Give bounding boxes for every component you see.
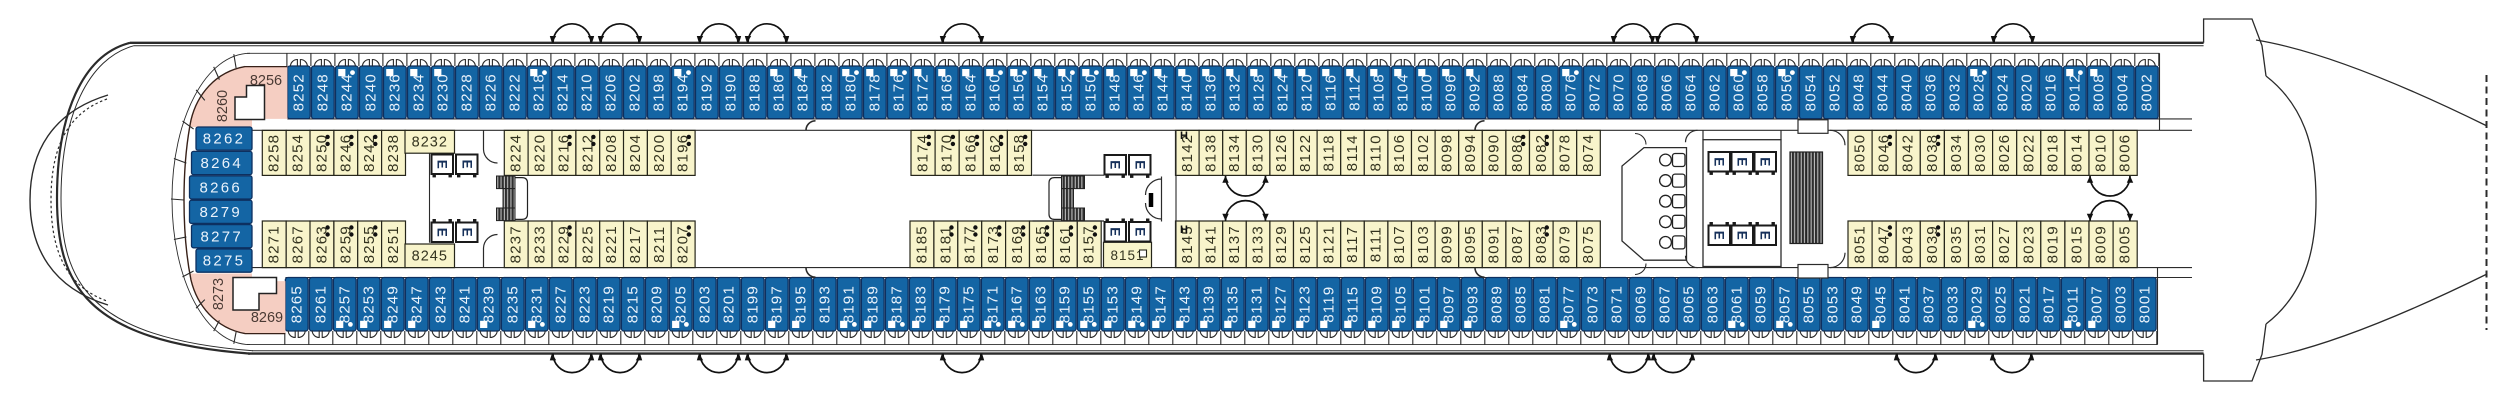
svg-text:8176: 8176 — [890, 73, 907, 111]
svg-text:8239: 8239 — [480, 285, 497, 323]
svg-text:8059: 8059 — [1752, 285, 1769, 323]
svg-text:8195: 8195 — [792, 285, 809, 323]
svg-text:E: E — [459, 228, 474, 237]
svg-text:8002: 8002 — [2138, 73, 2155, 111]
svg-text:H: H — [1180, 130, 1188, 142]
svg-text:8225: 8225 — [579, 225, 596, 263]
svg-text:8174: 8174 — [915, 134, 932, 172]
svg-text:8196: 8196 — [675, 134, 692, 172]
svg-text:8144: 8144 — [1154, 73, 1171, 111]
svg-text:8159: 8159 — [1056, 285, 1073, 323]
svg-text:8005: 8005 — [2117, 225, 2134, 263]
svg-text:8098: 8098 — [1438, 134, 1455, 172]
svg-text:8231: 8231 — [528, 285, 545, 323]
svg-text:8068: 8068 — [1634, 73, 1651, 111]
svg-text:8127: 8127 — [1272, 285, 1289, 323]
svg-text:8252: 8252 — [290, 73, 307, 111]
svg-text:8039: 8039 — [1924, 225, 1941, 263]
svg-text:8184: 8184 — [794, 73, 811, 111]
svg-text:8007: 8007 — [2088, 285, 2105, 323]
svg-text:8253: 8253 — [360, 285, 377, 323]
svg-text:8065: 8065 — [1680, 285, 1697, 323]
svg-text:8250: 8250 — [313, 134, 330, 172]
svg-text:8214: 8214 — [554, 73, 571, 111]
svg-text:8171: 8171 — [984, 285, 1001, 323]
svg-text:8190: 8190 — [722, 73, 739, 111]
svg-text:8086: 8086 — [1509, 134, 1526, 172]
svg-text:8107: 8107 — [1391, 225, 1408, 263]
svg-text:E: E — [1735, 157, 1750, 166]
svg-text:8155: 8155 — [1080, 285, 1097, 323]
svg-text:8140: 8140 — [1178, 73, 1195, 111]
svg-text:8103: 8103 — [1415, 225, 1432, 263]
svg-text:8072: 8072 — [1586, 73, 1603, 111]
svg-text:8191: 8191 — [840, 285, 857, 323]
svg-text:8222: 8222 — [506, 73, 523, 111]
svg-text:8235: 8235 — [504, 285, 521, 323]
svg-text:8117: 8117 — [1344, 226, 1361, 263]
svg-text:8153: 8153 — [1104, 285, 1121, 323]
svg-text:8026: 8026 — [1996, 134, 2013, 172]
svg-text:8211: 8211 — [651, 226, 668, 263]
svg-text:8242: 8242 — [361, 134, 378, 172]
svg-text:8156: 8156 — [1010, 73, 1027, 111]
svg-text:8031: 8031 — [1972, 225, 1989, 263]
svg-text:8125: 8125 — [1297, 225, 1314, 263]
svg-text:8040: 8040 — [1898, 73, 1915, 111]
svg-text:8279: 8279 — [200, 204, 243, 221]
svg-text:8038: 8038 — [1924, 134, 1941, 172]
svg-text:8001: 8001 — [2136, 285, 2153, 323]
svg-text:8116: 8116 — [1322, 74, 1339, 111]
svg-text:E: E — [435, 160, 450, 169]
svg-text:8168: 8168 — [938, 73, 955, 111]
svg-text:8060: 8060 — [1730, 73, 1747, 111]
svg-text:E: E — [1712, 157, 1727, 166]
svg-text:8197: 8197 — [768, 285, 785, 323]
svg-text:8136: 8136 — [1202, 73, 1219, 111]
svg-text:8238: 8238 — [385, 134, 402, 172]
svg-text:8118: 8118 — [1320, 134, 1337, 171]
svg-text:8188: 8188 — [746, 73, 763, 111]
svg-text:8236: 8236 — [386, 73, 403, 111]
svg-text:8105: 8105 — [1392, 285, 1409, 323]
svg-text:8131: 8131 — [1248, 285, 1265, 323]
svg-text:8092: 8092 — [1466, 73, 1483, 111]
svg-text:8073: 8073 — [1584, 285, 1601, 323]
svg-text:8277: 8277 — [201, 228, 244, 245]
svg-text:8052: 8052 — [1826, 73, 1843, 111]
svg-text:8115: 8115 — [1344, 286, 1361, 323]
svg-text:8122: 8122 — [1297, 134, 1314, 172]
svg-text:8069: 8069 — [1632, 285, 1649, 323]
svg-text:8230: 8230 — [434, 73, 451, 111]
svg-text:8133: 8133 — [1250, 225, 1267, 263]
svg-text:8163: 8163 — [1032, 285, 1049, 323]
svg-text:8024: 8024 — [1994, 73, 2011, 111]
svg-text:E: E — [1132, 227, 1147, 236]
svg-text:8094: 8094 — [1462, 134, 1479, 172]
svg-text:8074: 8074 — [1580, 134, 1597, 172]
svg-text:8234: 8234 — [410, 73, 427, 111]
svg-text:8205: 8205 — [672, 285, 689, 323]
svg-text:8120: 8120 — [1298, 73, 1315, 111]
svg-text:8264: 8264 — [201, 155, 244, 172]
svg-text:8221: 8221 — [603, 225, 620, 263]
svg-text:8021: 8021 — [2016, 285, 2033, 323]
svg-text:8010: 8010 — [2093, 134, 2110, 172]
svg-text:8084: 8084 — [1514, 73, 1531, 111]
svg-text:8137: 8137 — [1226, 225, 1243, 263]
svg-text:8146: 8146 — [1130, 73, 1147, 111]
svg-text:8179: 8179 — [936, 285, 953, 323]
svg-text:8050: 8050 — [1852, 134, 1869, 172]
svg-text:8182: 8182 — [818, 73, 835, 111]
svg-text:8172: 8172 — [914, 73, 931, 111]
svg-text:8271: 8271 — [266, 225, 283, 263]
svg-text:8201: 8201 — [720, 285, 737, 323]
svg-text:8245: 8245 — [412, 248, 448, 264]
svg-text:8198: 8198 — [650, 73, 667, 111]
svg-text:8149: 8149 — [1128, 285, 1145, 323]
svg-text:8194: 8194 — [674, 73, 691, 111]
svg-text:8200: 8200 — [651, 134, 668, 172]
svg-text:8112: 8112 — [1346, 74, 1363, 111]
svg-text:8057: 8057 — [1776, 285, 1793, 323]
svg-text:8066: 8066 — [1658, 73, 1675, 111]
svg-text:8237: 8237 — [508, 225, 525, 263]
svg-text:8036: 8036 — [1922, 73, 1939, 111]
svg-text:8154: 8154 — [1034, 73, 1051, 111]
svg-text:8228: 8228 — [458, 73, 475, 111]
svg-text:8061: 8061 — [1728, 285, 1745, 323]
svg-text:8114: 8114 — [1344, 134, 1361, 171]
svg-text:8254: 8254 — [290, 134, 307, 172]
svg-text:8132: 8132 — [1226, 73, 1243, 111]
svg-text:8022: 8022 — [2020, 134, 2037, 172]
svg-text:8165: 8165 — [1033, 225, 1050, 263]
svg-text:8054: 8054 — [1802, 73, 1819, 111]
svg-text:8139: 8139 — [1200, 285, 1217, 323]
svg-text:8266: 8266 — [200, 180, 243, 197]
svg-text:8177: 8177 — [961, 225, 978, 263]
svg-text:8128: 8128 — [1250, 73, 1267, 111]
svg-text:8180: 8180 — [842, 73, 859, 111]
svg-text:8220: 8220 — [532, 134, 549, 172]
svg-text:8244: 8244 — [338, 73, 355, 111]
svg-text:8027: 8027 — [1996, 225, 2013, 263]
svg-text:8028: 8028 — [1970, 73, 1987, 111]
svg-text:8267: 8267 — [290, 225, 307, 263]
svg-text:8240: 8240 — [362, 73, 379, 111]
svg-text:8006: 8006 — [2117, 134, 2134, 172]
svg-text:8275: 8275 — [203, 253, 246, 270]
svg-text:8099: 8099 — [1438, 225, 1455, 263]
svg-text:8248: 8248 — [314, 73, 331, 111]
svg-text:8257: 8257 — [336, 285, 353, 323]
svg-text:8223: 8223 — [576, 285, 593, 323]
svg-text:8011: 8011 — [2064, 286, 2081, 323]
svg-text:8207: 8207 — [675, 225, 692, 263]
svg-text:8070: 8070 — [1610, 73, 1627, 111]
svg-text:8199: 8199 — [744, 285, 761, 323]
svg-text:8251: 8251 — [385, 225, 402, 263]
svg-text:8129: 8129 — [1273, 225, 1290, 263]
svg-text:8161: 8161 — [1057, 225, 1074, 263]
svg-text:8152: 8152 — [1058, 73, 1075, 111]
svg-text:8109: 8109 — [1368, 285, 1385, 323]
svg-text:8138: 8138 — [1202, 134, 1219, 172]
svg-text:8208: 8208 — [603, 134, 620, 172]
svg-text:8041: 8041 — [1896, 285, 1913, 323]
svg-text:8062: 8062 — [1706, 73, 1723, 111]
svg-text:8160: 8160 — [986, 73, 1003, 111]
svg-text:8148: 8148 — [1106, 73, 1123, 111]
svg-text:8126: 8126 — [1273, 134, 1290, 172]
svg-text:8093: 8093 — [1464, 285, 1481, 323]
svg-text:8051: 8051 — [1852, 225, 1869, 263]
svg-text:8217: 8217 — [627, 225, 644, 263]
svg-text:8150: 8150 — [1082, 73, 1099, 111]
svg-text:8049: 8049 — [1848, 285, 1865, 323]
svg-text:8173: 8173 — [985, 225, 1002, 263]
svg-text:8232: 8232 — [412, 134, 448, 150]
svg-text:E: E — [435, 228, 450, 237]
svg-text:8256: 8256 — [250, 73, 282, 89]
svg-text:8095: 8095 — [1462, 225, 1479, 263]
svg-text:8067: 8067 — [1656, 285, 1673, 323]
svg-text:8034: 8034 — [1948, 134, 1965, 172]
svg-text:8104: 8104 — [1394, 73, 1411, 111]
svg-text:8077: 8077 — [1560, 285, 1577, 323]
svg-text:8209: 8209 — [648, 285, 665, 323]
svg-text:8045: 8045 — [1872, 285, 1889, 323]
svg-text:8097: 8097 — [1440, 285, 1457, 323]
svg-text:E: E — [1108, 160, 1123, 169]
svg-text:8130: 8130 — [1250, 134, 1267, 172]
svg-text:8134: 8134 — [1226, 134, 1243, 172]
svg-text:8108: 8108 — [1370, 73, 1387, 111]
svg-text:8018: 8018 — [2044, 134, 2061, 172]
svg-text:E: E — [459, 160, 474, 169]
svg-text:8014: 8014 — [2069, 134, 2086, 172]
svg-text:E: E — [1712, 231, 1727, 240]
svg-text:8212: 8212 — [579, 134, 596, 172]
svg-text:8166: 8166 — [963, 134, 980, 172]
svg-text:8096: 8096 — [1442, 73, 1459, 111]
svg-text:8147: 8147 — [1152, 285, 1169, 323]
svg-text:8263: 8263 — [313, 225, 330, 263]
svg-text:8009: 8009 — [2093, 225, 2110, 263]
svg-text:8247: 8247 — [408, 285, 425, 323]
svg-text:8015: 8015 — [2069, 225, 2086, 263]
svg-text:8193: 8193 — [816, 285, 833, 323]
svg-text:E: E — [1108, 227, 1123, 236]
svg-text:8056: 8056 — [1778, 73, 1795, 111]
svg-text:8187: 8187 — [888, 285, 905, 323]
svg-text:8085: 8085 — [1512, 285, 1529, 323]
svg-text:8273: 8273 — [211, 278, 227, 310]
svg-text:8241: 8241 — [456, 285, 473, 323]
svg-text:8079: 8079 — [1556, 225, 1573, 263]
svg-text:8078: 8078 — [1556, 134, 1573, 172]
svg-text:8081: 8081 — [1536, 285, 1553, 323]
svg-text:8124: 8124 — [1274, 73, 1291, 111]
svg-text:8064: 8064 — [1682, 73, 1699, 111]
svg-text:8227: 8227 — [552, 285, 569, 323]
svg-text:8012: 8012 — [2066, 73, 2083, 111]
svg-text:8087: 8087 — [1509, 225, 1526, 263]
svg-text:8020: 8020 — [2018, 73, 2035, 111]
svg-text:8233: 8233 — [532, 225, 549, 263]
svg-text:8123: 8123 — [1296, 285, 1313, 323]
svg-text:8043: 8043 — [1900, 225, 1917, 263]
svg-text:8008: 8008 — [2090, 73, 2107, 111]
svg-text:8091: 8091 — [1486, 225, 1503, 263]
svg-text:8243: 8243 — [432, 285, 449, 323]
svg-text:8219: 8219 — [600, 285, 617, 323]
svg-text:E: E — [1758, 231, 1773, 240]
svg-text:8088: 8088 — [1490, 73, 1507, 111]
svg-text:8186: 8186 — [770, 73, 787, 111]
svg-text:E: E — [1735, 231, 1750, 240]
svg-text:8202: 8202 — [626, 73, 643, 111]
svg-text:8058: 8058 — [1754, 73, 1771, 111]
svg-text:8076: 8076 — [1562, 73, 1579, 111]
svg-text:8215: 8215 — [624, 285, 641, 323]
svg-text:8162: 8162 — [987, 134, 1004, 172]
svg-text:8089: 8089 — [1488, 285, 1505, 323]
svg-text:8016: 8016 — [2042, 73, 2059, 111]
svg-text:8033: 8033 — [1944, 285, 1961, 323]
svg-text:8119: 8119 — [1320, 286, 1337, 323]
svg-text:8019: 8019 — [2044, 225, 2061, 263]
svg-text:8157: 8157 — [1081, 225, 1098, 263]
svg-text:8192: 8192 — [698, 73, 715, 111]
svg-text:8111: 8111 — [1368, 226, 1385, 262]
svg-text:8025: 8025 — [1992, 285, 2009, 323]
svg-text:8032: 8032 — [1946, 73, 1963, 111]
svg-text:8046: 8046 — [1876, 134, 1893, 172]
svg-text:8029: 8029 — [1968, 285, 1985, 323]
svg-text:E: E — [1758, 157, 1773, 166]
svg-text:E: E — [1132, 160, 1147, 169]
svg-text:8080: 8080 — [1538, 73, 1555, 111]
svg-text:8204: 8204 — [627, 134, 644, 172]
svg-text:8249: 8249 — [384, 285, 401, 323]
svg-text:8121: 8121 — [1320, 225, 1337, 263]
svg-text:H: H — [1180, 224, 1188, 236]
svg-text:8143: 8143 — [1176, 285, 1193, 323]
svg-text:8169: 8169 — [1009, 225, 1026, 263]
svg-text:8037: 8037 — [1920, 285, 1937, 323]
svg-text:8265: 8265 — [288, 285, 305, 323]
svg-text:8110: 8110 — [1368, 134, 1385, 171]
svg-text:8226: 8226 — [482, 73, 499, 111]
svg-text:8101: 8101 — [1416, 285, 1433, 323]
svg-text:8100: 8100 — [1418, 73, 1435, 111]
svg-text:8048: 8048 — [1850, 73, 1867, 111]
svg-text:8075: 8075 — [1580, 225, 1597, 263]
svg-text:8044: 8044 — [1874, 73, 1891, 111]
svg-text:8178: 8178 — [866, 73, 883, 111]
svg-text:8042: 8042 — [1900, 134, 1917, 172]
svg-text:8102: 8102 — [1415, 134, 1432, 172]
svg-text:8269: 8269 — [251, 310, 283, 326]
svg-text:8181: 8181 — [937, 225, 954, 263]
svg-text:8229: 8229 — [555, 225, 572, 263]
svg-text:8035: 8035 — [1948, 225, 1965, 263]
svg-text:8023: 8023 — [2020, 225, 2037, 263]
svg-text:8063: 8063 — [1704, 285, 1721, 323]
svg-text:8004: 8004 — [2114, 73, 2131, 111]
svg-text:8216: 8216 — [555, 134, 572, 172]
svg-text:8210: 8210 — [578, 73, 595, 111]
svg-text:8258: 8258 — [266, 134, 283, 172]
svg-text:8082: 8082 — [1533, 134, 1550, 172]
svg-text:8106: 8106 — [1391, 134, 1408, 172]
svg-text:8090: 8090 — [1486, 134, 1503, 172]
svg-text:8135: 8135 — [1224, 285, 1241, 323]
svg-text:8185: 8185 — [914, 225, 931, 263]
svg-text:8260: 8260 — [215, 90, 231, 122]
svg-text:8017: 8017 — [2040, 285, 2057, 323]
svg-text:8224: 8224 — [508, 134, 525, 172]
svg-text:8030: 8030 — [1972, 134, 1989, 172]
svg-text:8206: 8206 — [602, 73, 619, 111]
svg-text:8183: 8183 — [912, 285, 929, 323]
svg-text:8262: 8262 — [203, 131, 246, 148]
svg-text:8218: 8218 — [530, 73, 547, 111]
svg-text:8158: 8158 — [1011, 134, 1028, 172]
svg-text:8071: 8071 — [1608, 285, 1625, 323]
svg-text:8203: 8203 — [696, 285, 713, 323]
svg-text:8164: 8164 — [962, 73, 979, 111]
svg-text:8047: 8047 — [1876, 225, 1893, 263]
svg-text:8167: 8167 — [1008, 285, 1025, 323]
svg-text:8170: 8170 — [939, 134, 956, 172]
svg-text:8259: 8259 — [337, 225, 354, 263]
svg-text:8053: 8053 — [1824, 285, 1841, 323]
svg-text:8255: 8255 — [361, 225, 378, 263]
svg-text:8246: 8246 — [337, 134, 354, 172]
svg-text:8083: 8083 — [1533, 225, 1550, 263]
svg-text:8055: 8055 — [1800, 285, 1817, 323]
svg-text:8189: 8189 — [864, 285, 881, 323]
svg-text:8003: 8003 — [2112, 285, 2129, 323]
svg-text:8141: 8141 — [1202, 225, 1219, 263]
svg-text:8261: 8261 — [312, 285, 329, 323]
svg-text:8175: 8175 — [960, 285, 977, 323]
